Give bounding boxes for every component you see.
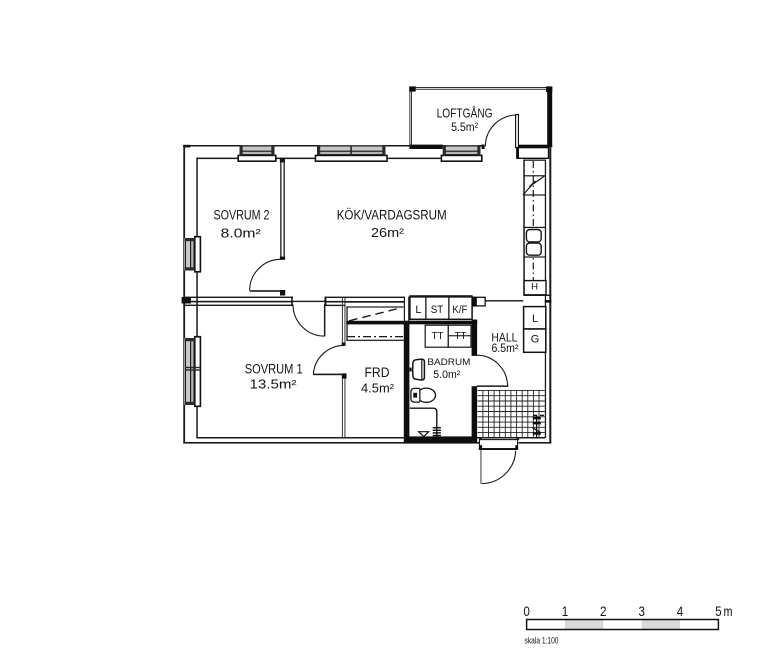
svg-text:m: m: [724, 604, 733, 619]
svg-text:13.5m²: 13.5m²: [250, 377, 298, 392]
svg-text:H: H: [531, 281, 538, 292]
svg-text:skala 1:100: skala 1:100: [525, 635, 559, 645]
svg-text:4.5m²: 4.5m²: [361, 380, 395, 395]
svg-text:5.5m²: 5.5m²: [451, 120, 478, 134]
svg-text:SOVRUM 2: SOVRUM 2: [214, 208, 270, 223]
svg-text:G: G: [531, 333, 540, 345]
svg-text:8.0m²: 8.0m²: [221, 226, 262, 241]
svg-text:0: 0: [523, 604, 530, 619]
svg-text:TT: TT: [455, 331, 467, 342]
svg-text:1: 1: [562, 604, 569, 619]
svg-text:2: 2: [600, 604, 607, 619]
svg-text:K/F: K/F: [452, 304, 467, 316]
svg-text:5: 5: [715, 604, 722, 619]
svg-text:KÖK/VARDAGSRUM: KÖK/VARDAGSRUM: [337, 208, 447, 223]
svg-text:BADRUM: BADRUM: [427, 357, 470, 368]
svg-text:3: 3: [638, 604, 645, 619]
svg-text:ST: ST: [431, 304, 444, 316]
svg-text:L: L: [415, 304, 421, 316]
svg-text:TT: TT: [432, 331, 444, 342]
svg-text:6.5m²: 6.5m²: [492, 343, 519, 355]
svg-text:4: 4: [677, 604, 684, 619]
svg-text:LOFTGÅNG: LOFTGÅNG: [437, 106, 493, 121]
svg-text:FRD: FRD: [365, 365, 390, 380]
svg-text:SOVRUM 1: SOVRUM 1: [245, 362, 303, 377]
svg-text:26m²: 26m²: [371, 225, 405, 240]
svg-text:5.0m²: 5.0m²: [433, 369, 460, 381]
svg-text:L: L: [532, 313, 538, 325]
